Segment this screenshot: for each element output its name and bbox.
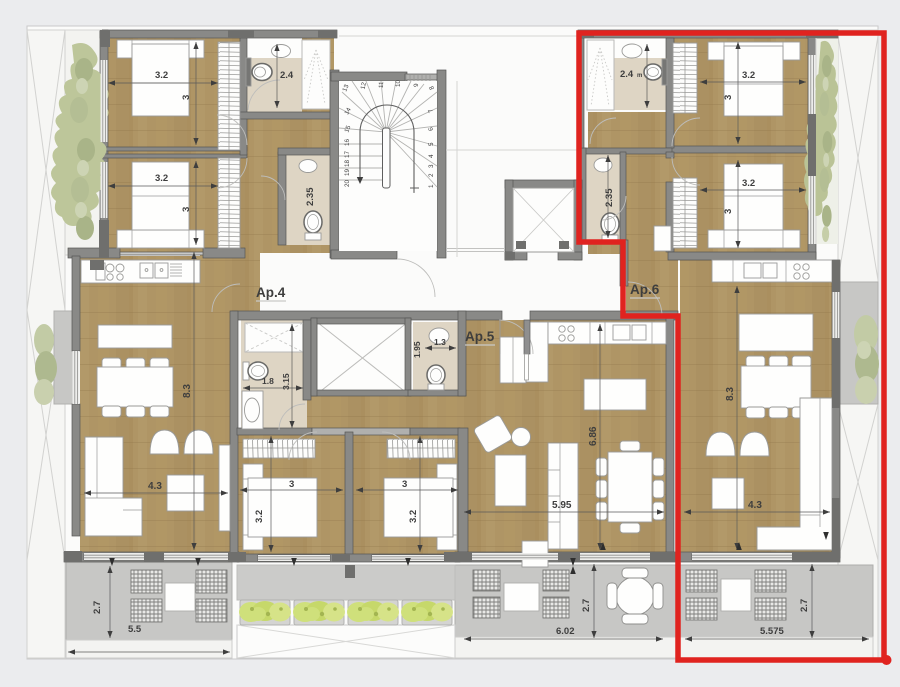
svg-text:3.2: 3.2 [742,70,755,81]
svg-text:2.35: 2.35 [305,187,316,206]
svg-text:6.02: 6.02 [556,626,575,637]
svg-text:m: m [637,73,642,79]
svg-text:2.7: 2.7 [799,599,810,612]
svg-text:5: 5 [428,142,435,146]
svg-text:1.95: 1.95 [412,341,422,358]
svg-text:3: 3 [723,95,734,100]
svg-text:5.95: 5.95 [552,500,572,511]
svg-text:3.2: 3.2 [742,178,755,189]
svg-text:3: 3 [723,209,734,214]
svg-text:3: 3 [181,207,192,212]
svg-text:4.3: 4.3 [148,481,162,492]
svg-text:3.2: 3.2 [155,173,168,184]
svg-text:5.575: 5.575 [760,626,784,637]
svg-text:18: 18 [344,159,351,167]
svg-text:19: 19 [344,168,351,176]
svg-text:16: 16 [344,138,351,146]
svg-text:Ap.4: Ap.4 [256,285,286,300]
svg-text:6.86: 6.86 [588,426,599,446]
svg-text:1: 1 [428,184,435,188]
svg-text:2.7: 2.7 [92,601,103,614]
svg-text:17: 17 [344,150,351,158]
svg-text:2.4: 2.4 [620,69,634,80]
svg-text:20: 20 [344,179,351,187]
svg-text:1.8: 1.8 [262,376,274,386]
svg-text:2.7: 2.7 [581,599,592,612]
svg-text:3: 3 [289,479,294,490]
svg-text:11: 11 [378,81,385,88]
svg-text:Ap.5: Ap.5 [465,329,495,344]
svg-text:5.5: 5.5 [128,624,142,635]
svg-text:3.15: 3.15 [281,373,291,390]
svg-text:3.2: 3.2 [155,70,168,81]
svg-text:3: 3 [428,164,435,168]
svg-text:3: 3 [402,479,407,490]
svg-text:8.3: 8.3 [725,387,736,401]
svg-text:2.4: 2.4 [280,70,294,81]
svg-text:3.2: 3.2 [408,510,419,523]
svg-text:2: 2 [428,173,435,177]
svg-text:8.3: 8.3 [182,384,193,398]
svg-text:10: 10 [395,79,402,87]
svg-text:1.3: 1.3 [434,337,446,347]
svg-text:4.3: 4.3 [748,500,762,511]
svg-text:3: 3 [181,95,192,100]
svg-text:3.2: 3.2 [254,510,265,523]
svg-text:2.35: 2.35 [604,188,615,207]
svg-text:Ap.6: Ap.6 [630,282,660,297]
svg-text:4: 4 [428,154,435,158]
